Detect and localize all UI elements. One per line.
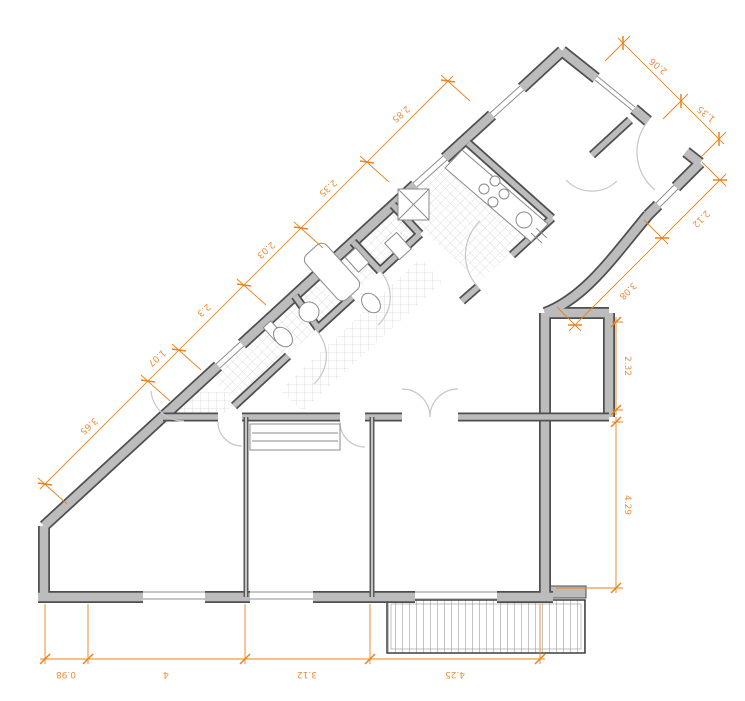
closet: [250, 424, 340, 450]
dim-label: 2.3: [195, 301, 212, 318]
stove-burner-icon: [490, 176, 500, 186]
dim-label: 4: [163, 669, 169, 679]
stove-burner-icon: [488, 197, 498, 207]
room1-door-arc: [218, 422, 242, 446]
room2-door-arc: [340, 422, 365, 447]
dim-label: 2.06: [648, 55, 670, 76]
french-door-left-arc: [402, 389, 430, 417]
dim-label: 2.12: [690, 208, 711, 229]
floor-plan-canvas: 3.65 1.07 2.3 2.03 2.35 2.85 2.06 1.35 2…: [0, 0, 745, 701]
french-door-right-arc: [430, 389, 458, 417]
dim-label: 1.35: [696, 103, 718, 123]
dim-label: 2.03: [255, 239, 277, 260]
balcony: [387, 586, 586, 653]
dimension-line-right-diagonal-chain: [569, 174, 726, 331]
stove-burner-icon: [499, 189, 509, 199]
entry-door-arc: [637, 121, 655, 190]
dim-label: 4.29: [622, 495, 632, 515]
dim-label: 3.12: [297, 669, 317, 679]
corridor-door-arc: [566, 180, 617, 191]
floor-plan-svg: 3.65 1.07 2.3 2.03 2.35 2.85 2.06 1.35 2…: [0, 0, 745, 701]
dim-label: 2.32: [622, 356, 632, 376]
dimension-line-top-right-chain: [618, 38, 724, 144]
balcony-slab: [387, 600, 585, 653]
dimensions: 3.65 1.07 2.3 2.03 2.35 2.85 2.06 1.35 2…: [38, 36, 727, 679]
dim-label: 3.08: [617, 280, 638, 301]
dim-label: 2.35: [317, 177, 339, 198]
stove-burner-icon: [479, 184, 489, 194]
washbasin-icon: [299, 302, 319, 322]
dim-label: 0.98: [56, 669, 76, 679]
kitchen-sink-icon: [516, 212, 532, 228]
dim-label: 4.25: [445, 669, 465, 679]
